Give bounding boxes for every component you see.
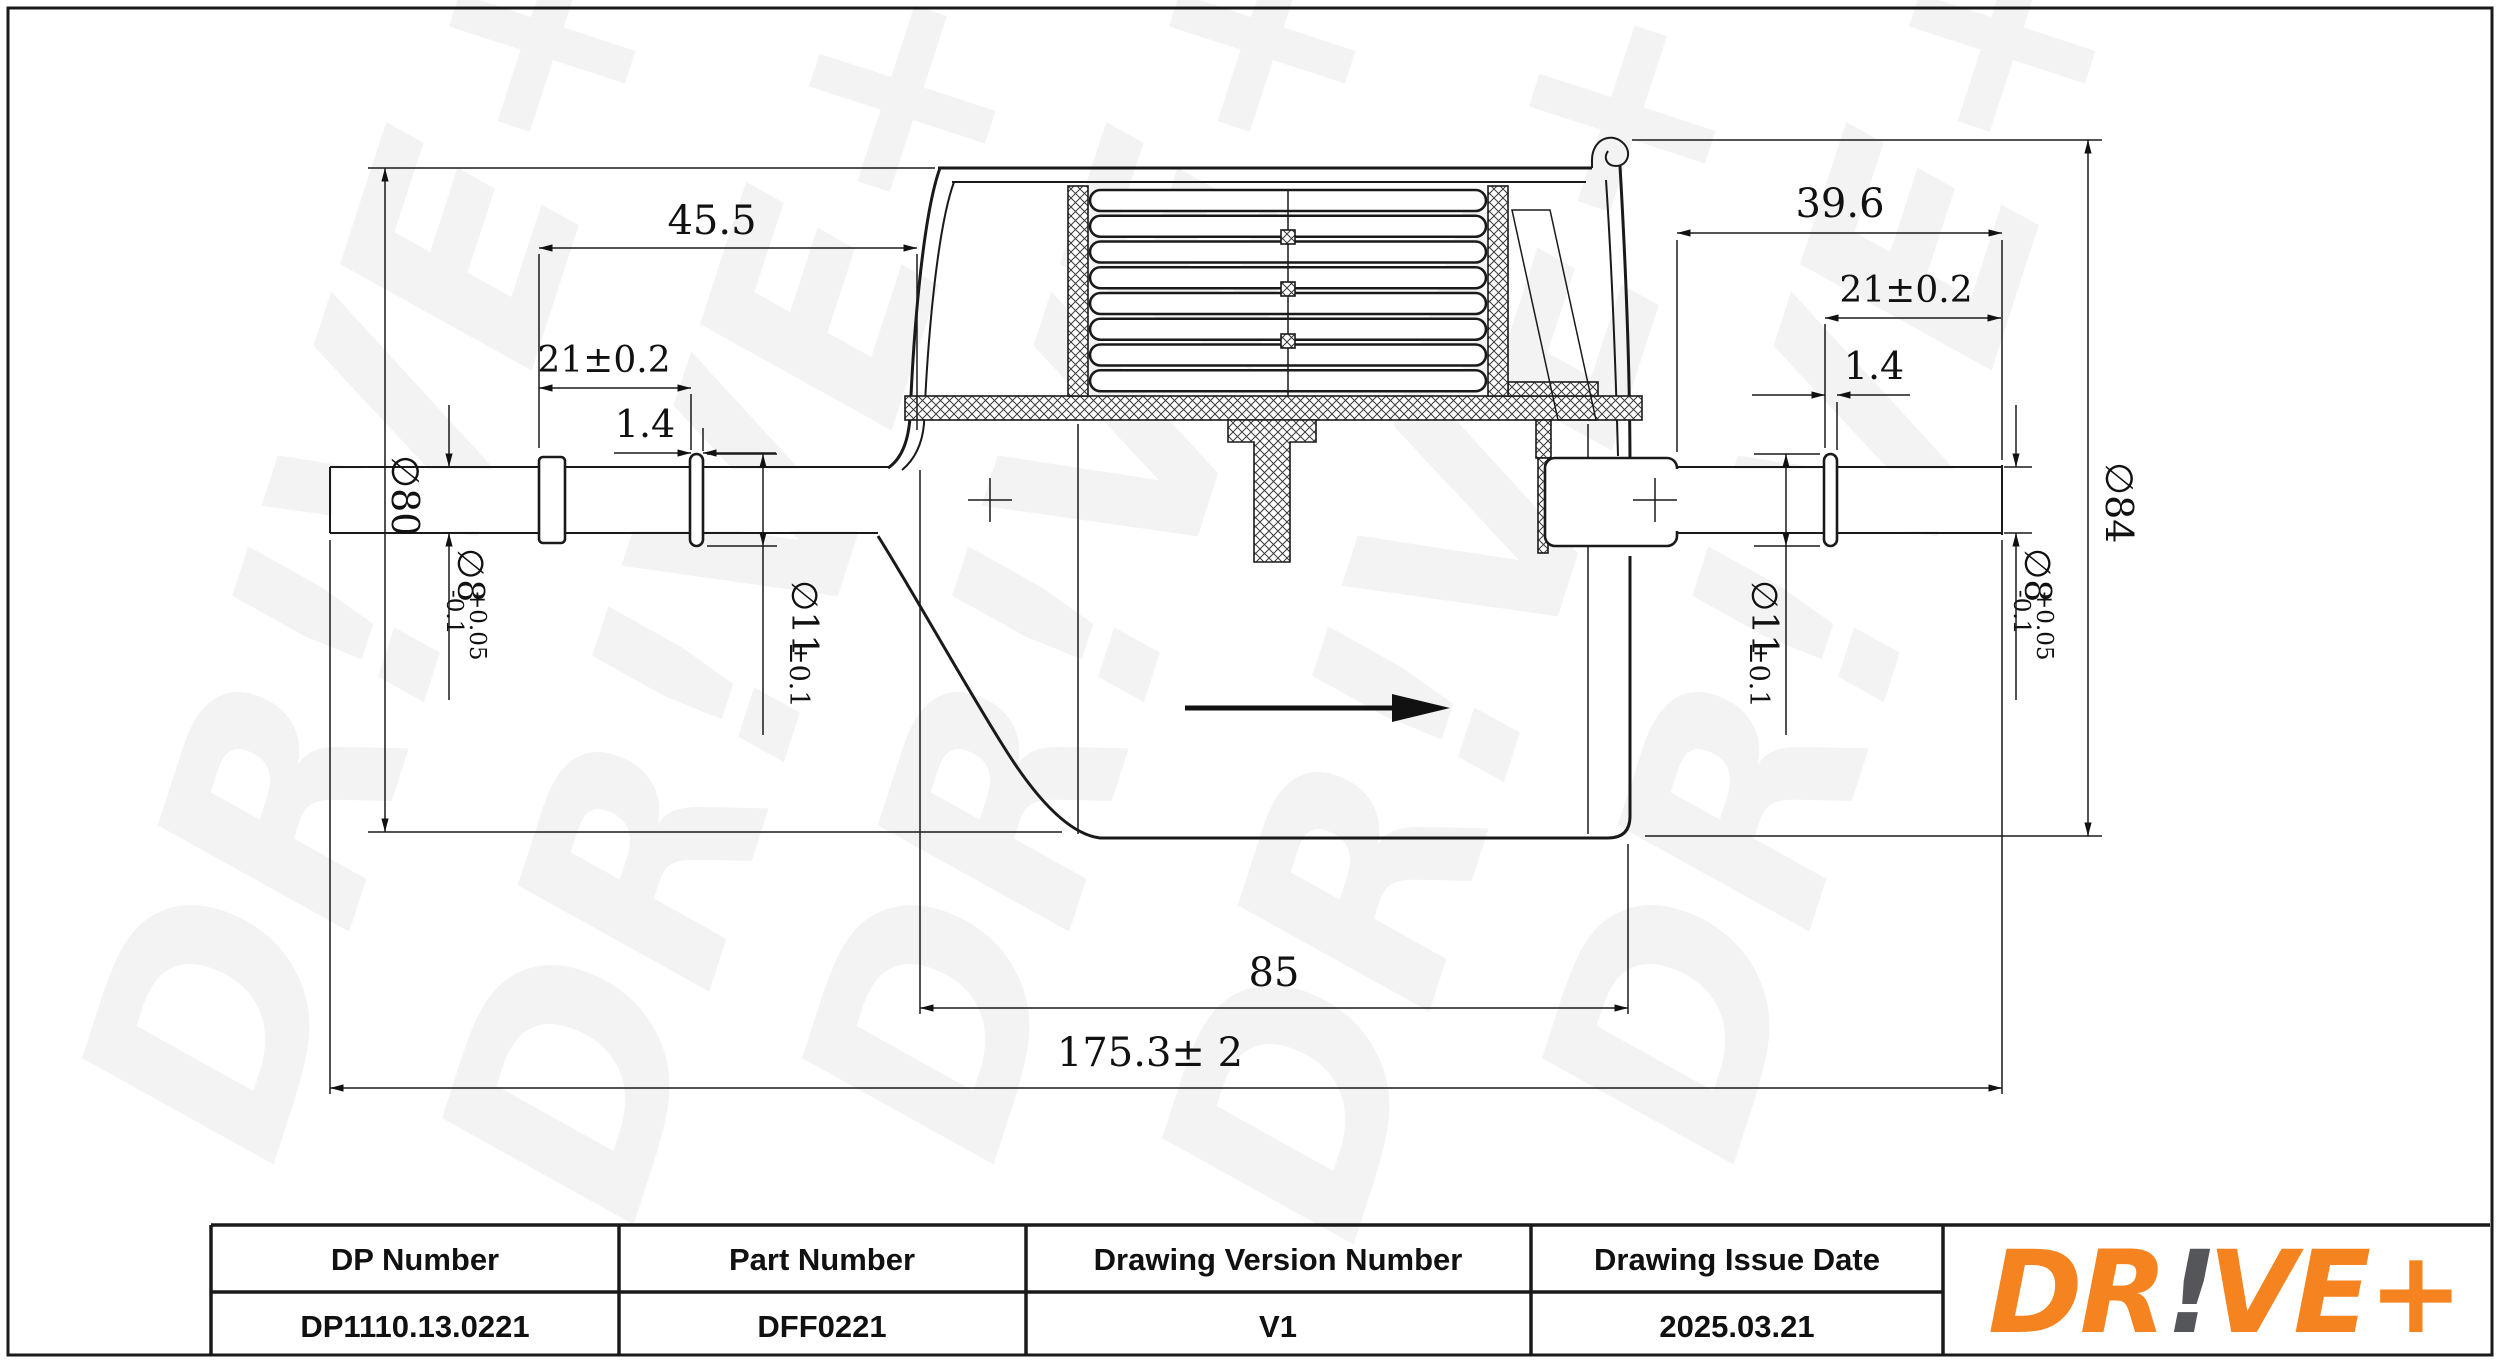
gasket-column — [1536, 420, 1551, 458]
svg-text:-0.1: -0.1 — [2008, 590, 2034, 634]
dim-left-bead-width: 1.4 — [615, 402, 675, 446]
svg-text:±0.1: ±0.1 — [1743, 642, 1774, 708]
brand-logo: DR ! VE+ — [1988, 1226, 2461, 1359]
dim-right-end-to-body: 39.6 — [1795, 181, 1884, 227]
dim-body-length: 85 — [1249, 950, 1300, 996]
logo-text-ve-plus: VE+ — [2208, 1226, 2461, 1359]
header-issue-date: Drawing Issue Date — [1594, 1242, 1880, 1277]
value-part-number: DFF0221 — [757, 1309, 886, 1344]
title-block: DP Number Part Number Drawing Version Nu… — [211, 1225, 2490, 1359]
element-end-plate-right — [1488, 186, 1508, 396]
logo-text-dr: DR — [1988, 1226, 2164, 1359]
header-dp-number: DP Number — [331, 1242, 499, 1277]
right-end-cap — [1545, 458, 1677, 546]
technical-drawing: DR!VE+ DR!VE+ DR!VE+ DR!VE+ DR!VE+ — [0, 0, 2500, 1363]
value-issue-date: 2025.03.21 — [1659, 1309, 1814, 1344]
dim-right-tube-exposed: 21±0.2 — [1839, 270, 1972, 311]
inlet-tube-bead — [690, 454, 703, 546]
dim-left-end-to-body: 45.5 — [667, 198, 756, 244]
value-drawing-version: V1 — [1259, 1309, 1297, 1344]
outlet-side — [1545, 454, 2002, 546]
header-drawing-version: Drawing Version Number — [1094, 1242, 1463, 1277]
value-dp-number: DP1110.13.0221 — [300, 1309, 529, 1344]
dim-right-bead-width: 1.4 — [1844, 344, 1904, 388]
gasket-bar — [905, 396, 1642, 420]
dim-overall-length: 175.3± 2 — [1057, 1030, 1243, 1076]
svg-text:-0.1: -0.1 — [441, 590, 467, 634]
inlet-collar — [539, 457, 565, 543]
dim-right-body-diameter: ∅84 — [2097, 462, 2141, 543]
svg-text:±0.1: ±0.1 — [783, 642, 814, 708]
outlet-tube-bead — [1824, 454, 1837, 546]
drawing-page: DR!VE+ DR!VE+ DR!VE+ DR!VE+ DR!VE+ — [0, 0, 2500, 1363]
element-end-plate-left — [1068, 186, 1088, 396]
dim-left-body-diameter: ∅80 — [383, 455, 427, 536]
header-part-number: Part Number — [729, 1242, 915, 1277]
dim-left-tube-exposed: 21±0.2 — [537, 340, 670, 381]
